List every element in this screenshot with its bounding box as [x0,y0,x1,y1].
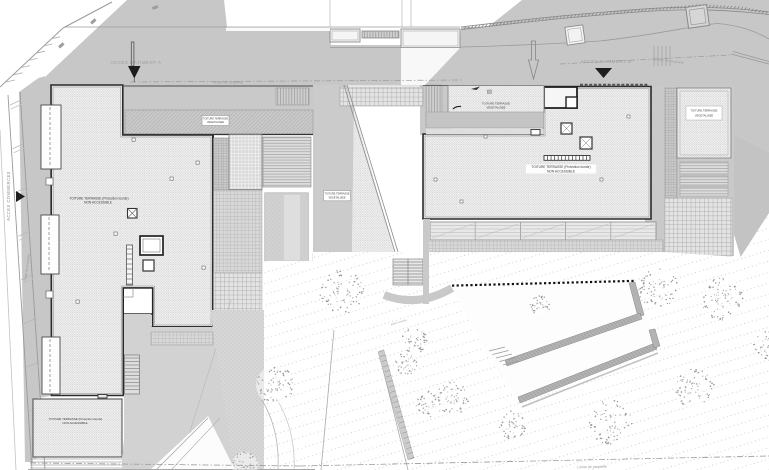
svg-text:Limite de propriété: Limite de propriété [577,465,607,470]
svg-text:ACCES COMMERCES: ACCES COMMERCES [6,171,11,221]
svg-text:VEGETALISEE: VEGETALISEE [486,106,505,110]
svg-text:ACCES BATIMENT A: ACCES BATIMENT A [111,60,162,65]
svg-text:Limite de propriété: Limite de propriété [213,81,244,85]
svg-text:TOITURE TERRASSE (Protection l: TOITURE TERRASSE (Protection lourde) [531,165,590,169]
svg-text:TOITURE TERRASSE: TOITURE TERRASSE [203,117,228,120]
svg-text:VEGETALISEE: VEGETALISEE [328,196,345,199]
svg-text:VEGETALISEE: VEGETALISEE [695,114,714,118]
svg-text:TOITURE TERRASSE: TOITURE TERRASSE [691,109,718,113]
svg-text:TOITURE TERRASSE: TOITURE TERRASSE [324,192,349,195]
svg-text:NON ACCESSIBLE: NON ACCESSIBLE [547,170,575,174]
svg-text:NON ACCESSIBLE: NON ACCESSIBLE [84,201,112,205]
svg-text:TOITURE TERRASSE: TOITURE TERRASSE [482,101,510,105]
svg-text:NON ACCESSIBLE: NON ACCESSIBLE [62,421,87,425]
svg-text:VEGETALISEE: VEGETALISEE [207,121,224,124]
svg-text:ACCES BATIMENT B: ACCES BATIMENT B [581,59,632,64]
